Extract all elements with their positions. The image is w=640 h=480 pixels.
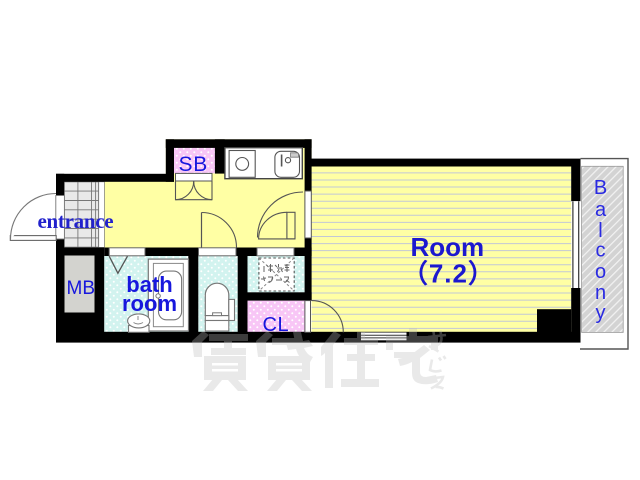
svg-text:y: y: [596, 302, 606, 324]
svg-text:（7.2）: （7.2）: [402, 259, 495, 289]
svg-text:Room: Room: [410, 232, 484, 262]
svg-text:a: a: [595, 199, 607, 221]
svg-text:SB: SB: [179, 153, 209, 176]
svg-text:entrance: entrance: [38, 209, 114, 233]
svg-text:c: c: [596, 240, 606, 262]
svg-text:B: B: [594, 177, 607, 199]
svg-text:MB: MB: [67, 278, 96, 299]
svg-text:room: room: [122, 291, 177, 316]
svg-text:o: o: [595, 261, 606, 283]
svg-text:n: n: [595, 282, 606, 304]
